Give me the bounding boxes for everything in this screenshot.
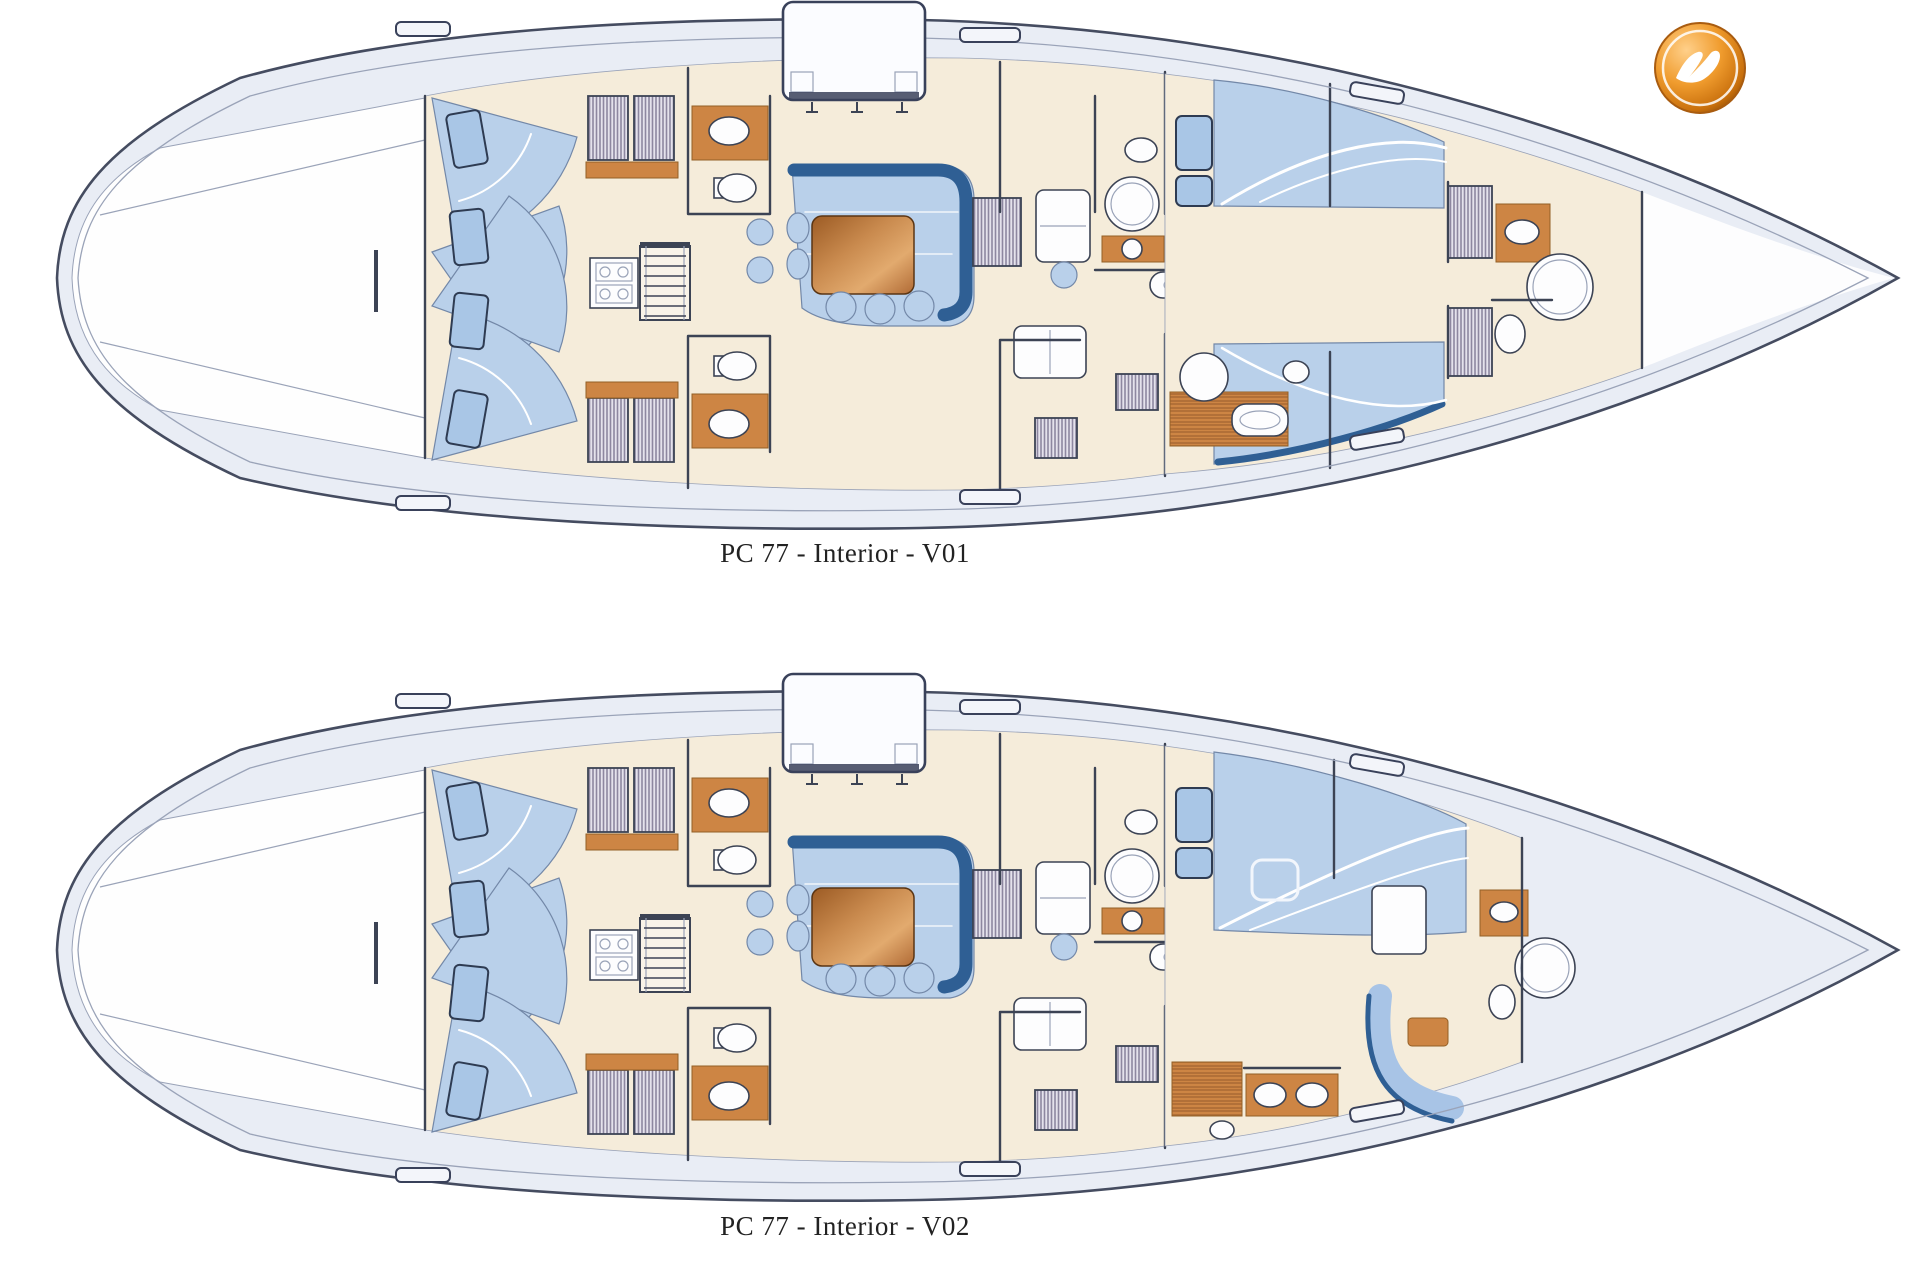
- caption-v02: PC 77 - Interior - V02: [720, 1211, 970, 1241]
- floorplan-sheet: PC 77 - Interior - V01 PC 77 - Interior …: [0, 0, 1920, 1280]
- plan-v02: [57, 674, 1898, 1201]
- caption-v01: PC 77 - Interior - V01: [720, 538, 970, 568]
- plan-v01: [57, 2, 1898, 529]
- floorplan-drawing: PC 77 - Interior - V01 PC 77 - Interior …: [0, 0, 1920, 1280]
- shipyard-logo: [1655, 23, 1745, 113]
